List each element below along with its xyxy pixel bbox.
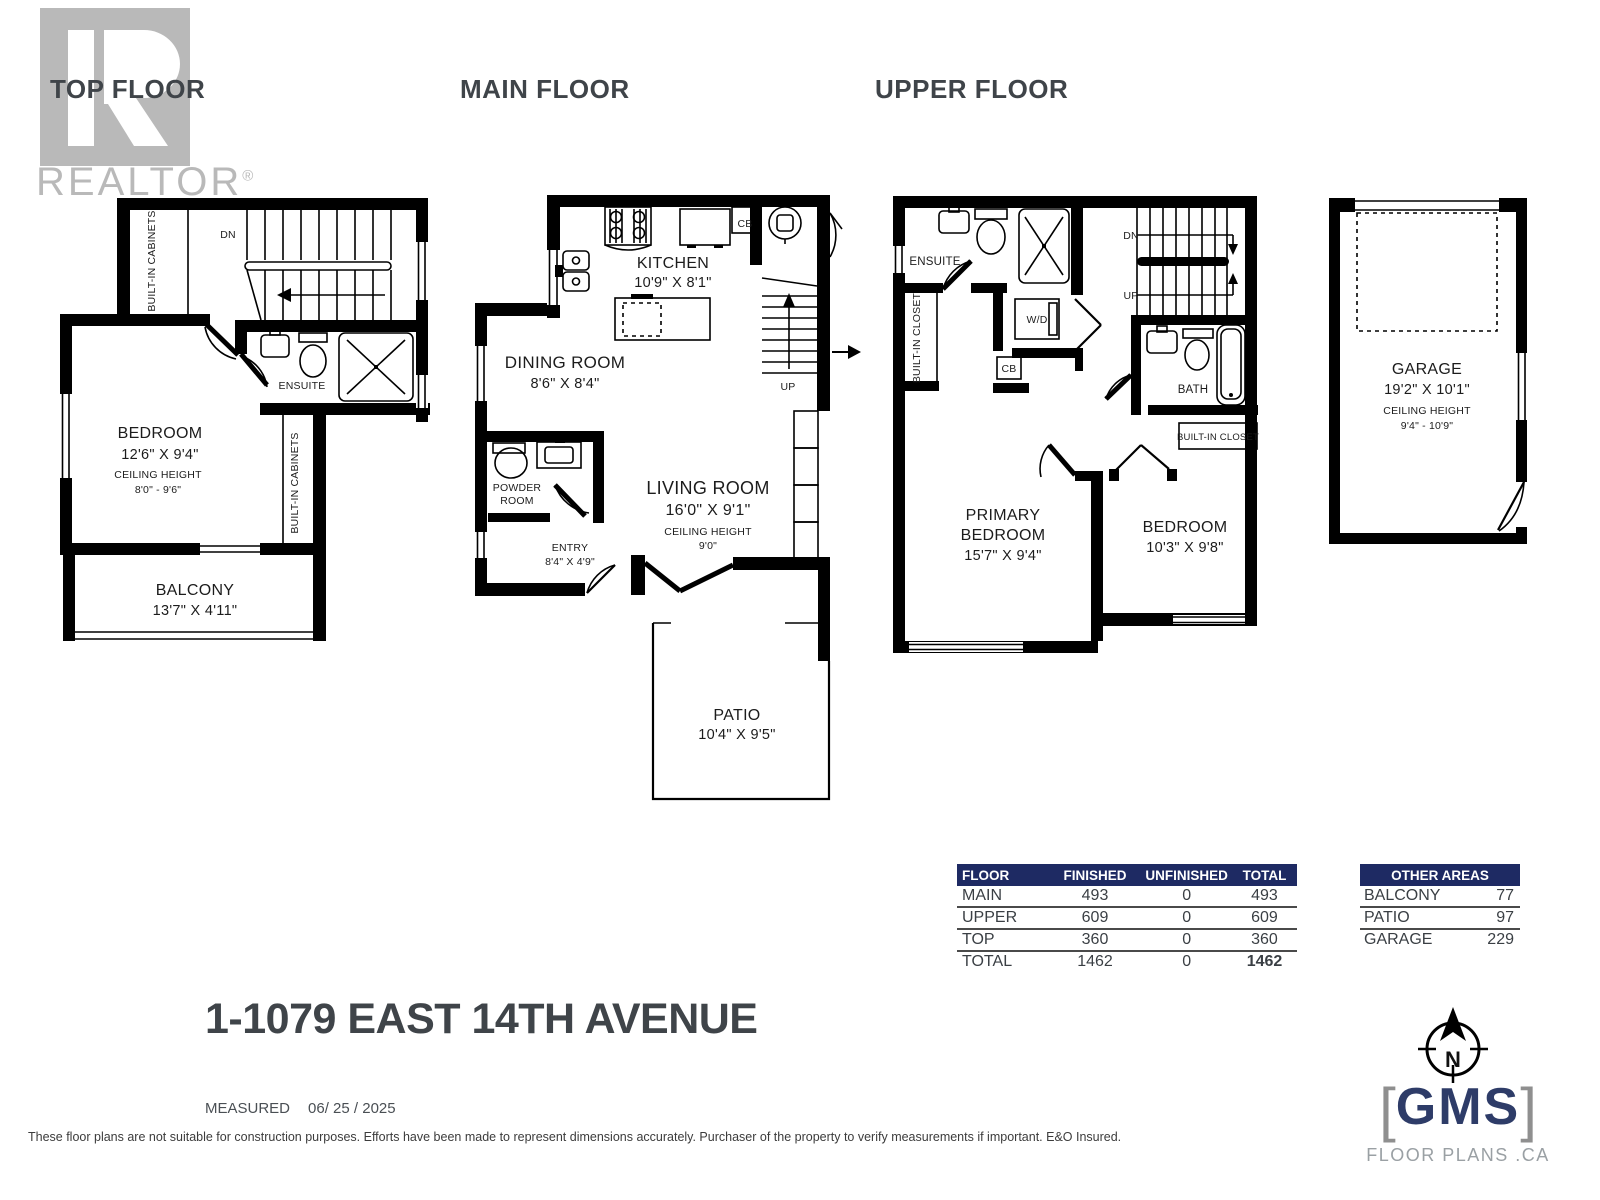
primary-label-2: BEDROOM	[961, 527, 1046, 544]
garage-texts: GARAGE 19'2" X 10'1" CEILING HEIGHT 9'4"…	[1383, 361, 1471, 432]
powder-door	[555, 485, 589, 516]
window	[893, 246, 905, 273]
kitchen-fixtures	[555, 207, 758, 340]
window	[1173, 615, 1245, 624]
table-row: MAIN 493 0 493	[957, 886, 1297, 908]
up-arrow	[1228, 273, 1238, 284]
gms-logo: [GMS]	[1358, 1080, 1558, 1140]
garage-ceiling-value: 9'4" - 10'9"	[1401, 420, 1453, 432]
built-in-closet-label: BUILT-IN CLOSET	[911, 292, 923, 383]
cell: 0	[1141, 887, 1232, 905]
powder-label-1: POWDER	[493, 482, 542, 494]
toilet-icon	[1183, 329, 1213, 370]
kitchen-island	[615, 294, 710, 340]
bath-fixtures	[1106, 325, 1245, 405]
built-in-closet-label-2: BUILT-IN CLOSET	[1177, 432, 1259, 443]
cell: 360	[1232, 931, 1297, 949]
wd-label: W/D	[1026, 314, 1047, 326]
bath-label: BATH	[1178, 384, 1209, 396]
other-areas-header: OTHER AREAS	[1360, 864, 1520, 886]
table-row: BALCONY 77	[1360, 886, 1520, 908]
sink-icon	[1147, 326, 1177, 353]
window	[475, 532, 487, 558]
compass-icon: N	[1408, 1005, 1498, 1087]
gms-name: GMS	[1396, 1078, 1520, 1136]
gms-bracket-left: [	[1379, 1076, 1396, 1143]
measured-label: MEASURED	[205, 1100, 290, 1117]
garage-plan: GARAGE 19'2" X 10'1" CEILING HEIGHT 9'4"…	[1293, 183, 1533, 558]
balcony-railing	[63, 632, 326, 639]
measured-date: 06/ 25 / 2025	[308, 1100, 396, 1117]
dining-dims: 8'6" X 8'4"	[530, 376, 599, 392]
window	[475, 346, 487, 401]
oven-icon	[680, 209, 730, 248]
cell: 1462	[1049, 953, 1142, 971]
living-ceiling-label: CEILING HEIGHT	[664, 526, 752, 538]
entry-label: ENTRY	[552, 542, 588, 554]
stair-arrow	[277, 288, 291, 302]
cell: BALCONY	[1360, 887, 1462, 905]
dining-label: DINING ROOM	[505, 353, 625, 372]
cell: TOTAL	[957, 953, 1049, 971]
area-table-header: FLOOR FINISHED UNFINISHED TOTAL	[957, 864, 1297, 886]
bedroom-label: BEDROOM	[118, 425, 203, 442]
bifold-doors	[1075, 299, 1101, 351]
garage-window	[1519, 353, 1526, 420]
ensuite-label: ENSUITE	[909, 256, 960, 268]
water-heater-closet	[769, 207, 842, 257]
upper-floor-texts: ENSUITE BUILT-IN CLOSET W/D CB DN UP BAT…	[909, 230, 1259, 564]
living-ceiling-value: 9'0"	[699, 540, 717, 552]
cell: GARAGE	[1360, 931, 1462, 949]
cell: 609	[1049, 909, 1142, 927]
garage-dims: 19'2" X 10'1"	[1384, 382, 1470, 398]
heading-upper-floor: UPPER FLOOR	[875, 74, 1068, 105]
cb-label: CB	[738, 218, 753, 230]
stair-arrow	[783, 293, 795, 307]
main-floor-windows	[475, 250, 560, 558]
gms-tagline: FLOOR PLANS .CA	[1358, 1145, 1558, 1166]
kitchen-label: KITCHEN	[637, 255, 709, 272]
garage-ceiling-label: CEILING HEIGHT	[1383, 405, 1471, 417]
col-finished: FINISHED	[1049, 868, 1142, 883]
top-floor-plan: DN BUILT-IN CABINETS BUILT-IN CABINETS E…	[55, 183, 440, 658]
cell: 609	[1232, 909, 1297, 927]
cell: 97	[1462, 909, 1520, 927]
table-row: GARAGE 229	[1360, 930, 1520, 950]
compass-n-label: N	[1445, 1047, 1461, 1072]
dn-arrow	[1228, 244, 1238, 255]
main-floor-plan: KITCHEN 10'9" X 8'1" CB DINING ROOM 8'6"…	[455, 183, 845, 808]
cell: 493	[1232, 887, 1297, 905]
kitchen-sink-icon	[555, 251, 589, 291]
stove-icon	[605, 207, 651, 250]
other-areas-table: OTHER AREAS BALCONY 77 PATIO 97 GARAGE 2…	[1360, 864, 1520, 950]
col-floor: FLOOR	[957, 868, 1049, 883]
living-room-builtins	[794, 411, 818, 558]
table-total-row: TOTAL 1462 0 1462	[957, 952, 1297, 972]
kitchen-dims: 10'9" X 8'1"	[634, 275, 711, 291]
built-in-cabinets-label-2: BUILT-IN CABINETS	[289, 432, 301, 533]
cell: 229	[1462, 931, 1520, 949]
primary-label-1: PRIMARY	[966, 507, 1041, 524]
entry-arrow-icon	[832, 342, 862, 362]
main-floor-stairs	[762, 278, 817, 373]
cell: 0	[1141, 953, 1232, 971]
floor-plan-sheet: REALTOR® TOP FLOOR MAIN FLOOR UPPER FLOO…	[0, 0, 1600, 1200]
disclaimer-text: These floor plans are not suitable for c…	[28, 1130, 1121, 1144]
primary-dims: 15'7" X 9'4"	[964, 548, 1041, 564]
ceiling-height-label: CEILING HEIGHT	[114, 469, 202, 481]
powder-label-2: ROOM	[500, 495, 533, 507]
table-row: UPPER 609 0 609	[957, 908, 1297, 930]
cell: MAIN	[957, 887, 1049, 905]
toilet-icon	[493, 443, 527, 478]
entry-doors	[587, 563, 733, 593]
top-floor-millwork	[188, 210, 283, 543]
built-in-cabinets-label: BUILT-IN CABINETS	[146, 210, 158, 311]
area-table: FLOOR FINISHED UNFINISHED TOTAL MAIN 493…	[957, 864, 1297, 972]
table-row: TOP 360 0 360	[957, 930, 1297, 952]
ceiling-height-value: 8'0" - 9'6"	[135, 484, 181, 496]
balcony-door	[200, 546, 260, 552]
col-unfinished: UNFINISHED	[1141, 868, 1232, 883]
col-total: TOTAL	[1232, 868, 1297, 883]
table-row: PATIO 97	[1360, 908, 1520, 930]
address-title: 1-1079 EAST 14TH AVENUE	[205, 995, 757, 1044]
balcony-label: BALCONY	[156, 582, 235, 599]
window	[60, 394, 72, 478]
sink-icon	[261, 329, 289, 357]
upper-stairs	[1137, 208, 1238, 315]
bedroom-dims: 12'6" X 9'4"	[121, 447, 198, 463]
toilet-icon	[975, 209, 1007, 254]
upper-ensuite-fixtures	[939, 206, 1069, 289]
window	[909, 642, 1023, 652]
cb-label: CB	[1002, 363, 1017, 375]
cell: PATIO	[1360, 909, 1462, 927]
cell: 493	[1049, 887, 1142, 905]
bathtub-icon	[1217, 325, 1245, 405]
cell: 360	[1049, 931, 1142, 949]
garage-door-top	[1355, 201, 1499, 210]
overhead-door-dashed	[1357, 213, 1497, 331]
shower-icon	[339, 333, 413, 401]
sink-icon	[939, 206, 969, 233]
cell: 0	[1141, 931, 1232, 949]
heading-main-floor: MAIN FLOOR	[460, 74, 630, 105]
up-label: UP	[781, 381, 796, 393]
heading-top-floor: TOP FLOOR	[50, 74, 205, 105]
window	[416, 375, 428, 408]
cell: 77	[1462, 887, 1520, 905]
living-label: LIVING ROOM	[646, 478, 769, 498]
patio-label: PATIO	[713, 707, 760, 724]
window	[416, 242, 428, 300]
gms-bracket-right: ]	[1520, 1076, 1537, 1143]
top-floor-stairs	[245, 210, 391, 320]
cell: UPPER	[957, 909, 1049, 927]
bedroom2-label: BEDROOM	[1143, 519, 1228, 536]
dn-label: DN	[1123, 230, 1139, 242]
patio-dims: 10'4" X 9'5"	[698, 727, 775, 743]
cell: 0	[1141, 909, 1232, 927]
toilet-icon	[299, 333, 327, 377]
window	[547, 250, 560, 305]
balcony-dims: 13'7" X 4'11"	[153, 603, 238, 619]
up-label: UP	[1124, 290, 1139, 302]
bedroom-doors	[1040, 445, 1169, 477]
dn-label: DN	[220, 229, 236, 241]
living-dims: 16'0" X 9'1"	[665, 502, 750, 519]
cell: TOP	[957, 931, 1049, 949]
cell: 1462	[1232, 953, 1297, 971]
ensuite-label: ENSUITE	[279, 380, 326, 392]
bath-door	[1106, 375, 1131, 399]
shower-icon	[1019, 209, 1069, 283]
measured-line: MEASURED06/ 25 / 2025	[205, 1100, 396, 1117]
entry-dims: 8'4" X 4'9"	[545, 556, 595, 568]
garage-side-door	[1498, 482, 1524, 531]
bedroom2-dims: 10'3" X 9'8"	[1146, 540, 1223, 556]
upper-floor-plan: ENSUITE BUILT-IN CLOSET W/D CB DN UP BAT…	[863, 183, 1263, 663]
garage-label: GARAGE	[1392, 361, 1462, 378]
